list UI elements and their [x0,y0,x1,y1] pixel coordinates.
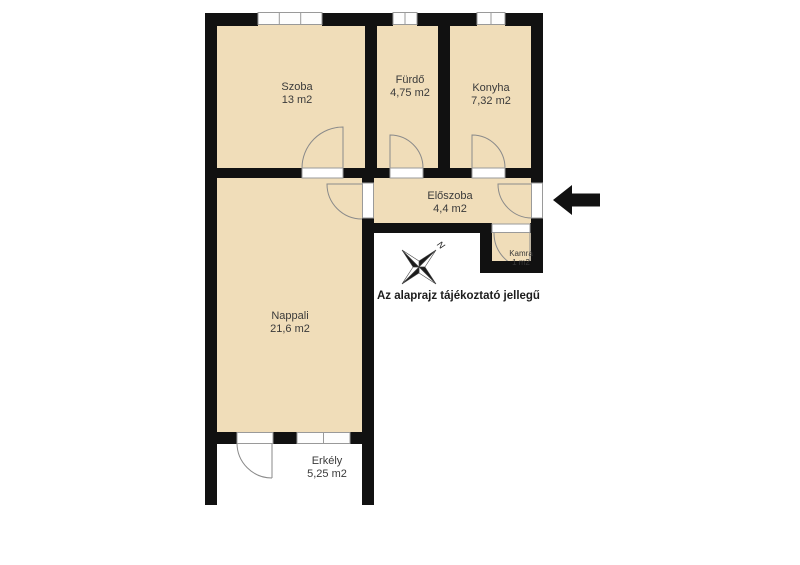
door-balcony [237,443,272,478]
wall-segment [530,223,543,233]
sill-nappali-door [363,183,374,218]
wall-segment [365,26,377,168]
sill-konyha-door [472,168,505,178]
sill-entrance-door [532,183,543,218]
room-label-nappali: Nappali 21,6 m2 [270,310,310,335]
wall-segment [531,13,543,183]
room-name: Konyha [471,82,511,95]
room-area: 1 m2 [509,258,533,267]
room-name: Szoba [281,81,312,94]
wall-segment [417,13,477,26]
room-name: Nappali [270,310,310,323]
room-label-kamra: Kamra 1 m2 [509,249,533,267]
room-name: Fürdő [390,74,430,87]
room-label-konyha: Konyha 7,32 m2 [471,82,511,107]
wall-segment [438,26,450,168]
room-area: 13 m2 [281,94,312,107]
room-area: 4,4 m2 [427,203,472,216]
room-name: Előszoba [427,190,472,203]
room-name: Erkély [307,455,347,468]
window-konyha [477,13,505,25]
window-furdo [393,13,417,25]
wall-segment [505,168,543,178]
wall-segment [205,432,237,444]
compass-north-label: N [435,239,447,251]
sill-balcony-door [237,433,273,444]
wall-segment [350,432,374,444]
wall-segment [273,432,297,444]
wall-segment [205,168,302,178]
wall-segment [362,178,374,183]
wall-segment [343,168,390,178]
room-label-eloszoba: Előszoba 4,4 m2 [427,190,472,215]
room-area: 7,32 m2 [471,95,511,108]
window-nappali [297,433,350,444]
wall-segment [362,223,492,233]
room-label-furdo: Fürdő 4,75 m2 [390,74,430,99]
room-label-erkely: Erkély 5,25 m2 [307,455,347,480]
room-area: 4,75 m2 [390,87,430,100]
room-area: 21,6 m2 [270,323,310,336]
sill-kamra-door [492,224,530,233]
wall-segment [423,168,472,178]
wall-segment [362,218,374,505]
sill-szoba-door [302,168,343,178]
sill-furdo-door [390,168,423,178]
disclaimer-text: Az alaprajz tájékoztató jellegű [377,290,540,302]
window-szoba [258,13,322,25]
room-nappali-floor [211,172,374,438]
wall-segment [205,13,217,505]
room-name: Kamra [509,249,533,258]
wall-segment [322,13,393,26]
room-label-szoba: Szoba 13 m2 [281,81,312,106]
room-area: 5,25 m2 [307,468,347,481]
entrance-arrow-icon [553,185,600,215]
floorplan-canvas: N Szoba 13 m2 Fürdő 4,75 m2 Konyha 7,32 … [0,0,800,565]
